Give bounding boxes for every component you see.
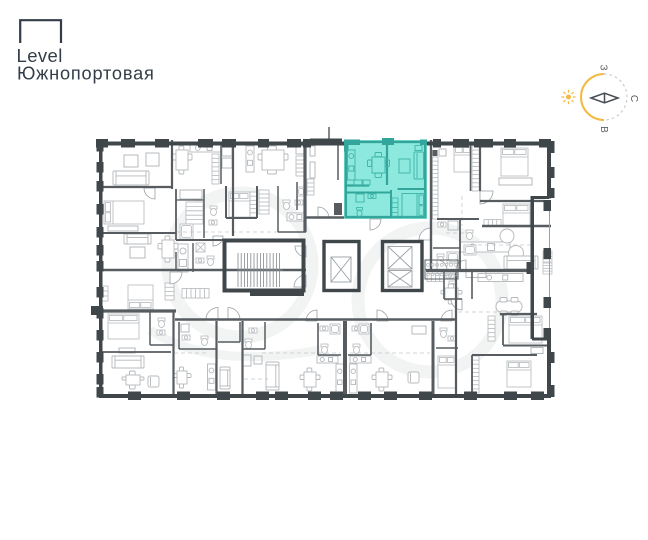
- svg-text:З: З: [598, 64, 609, 70]
- svg-text:С: С: [628, 95, 639, 102]
- svg-text:В: В: [598, 126, 609, 133]
- svg-text:Южнопортовая: Южнопортовая: [17, 64, 155, 84]
